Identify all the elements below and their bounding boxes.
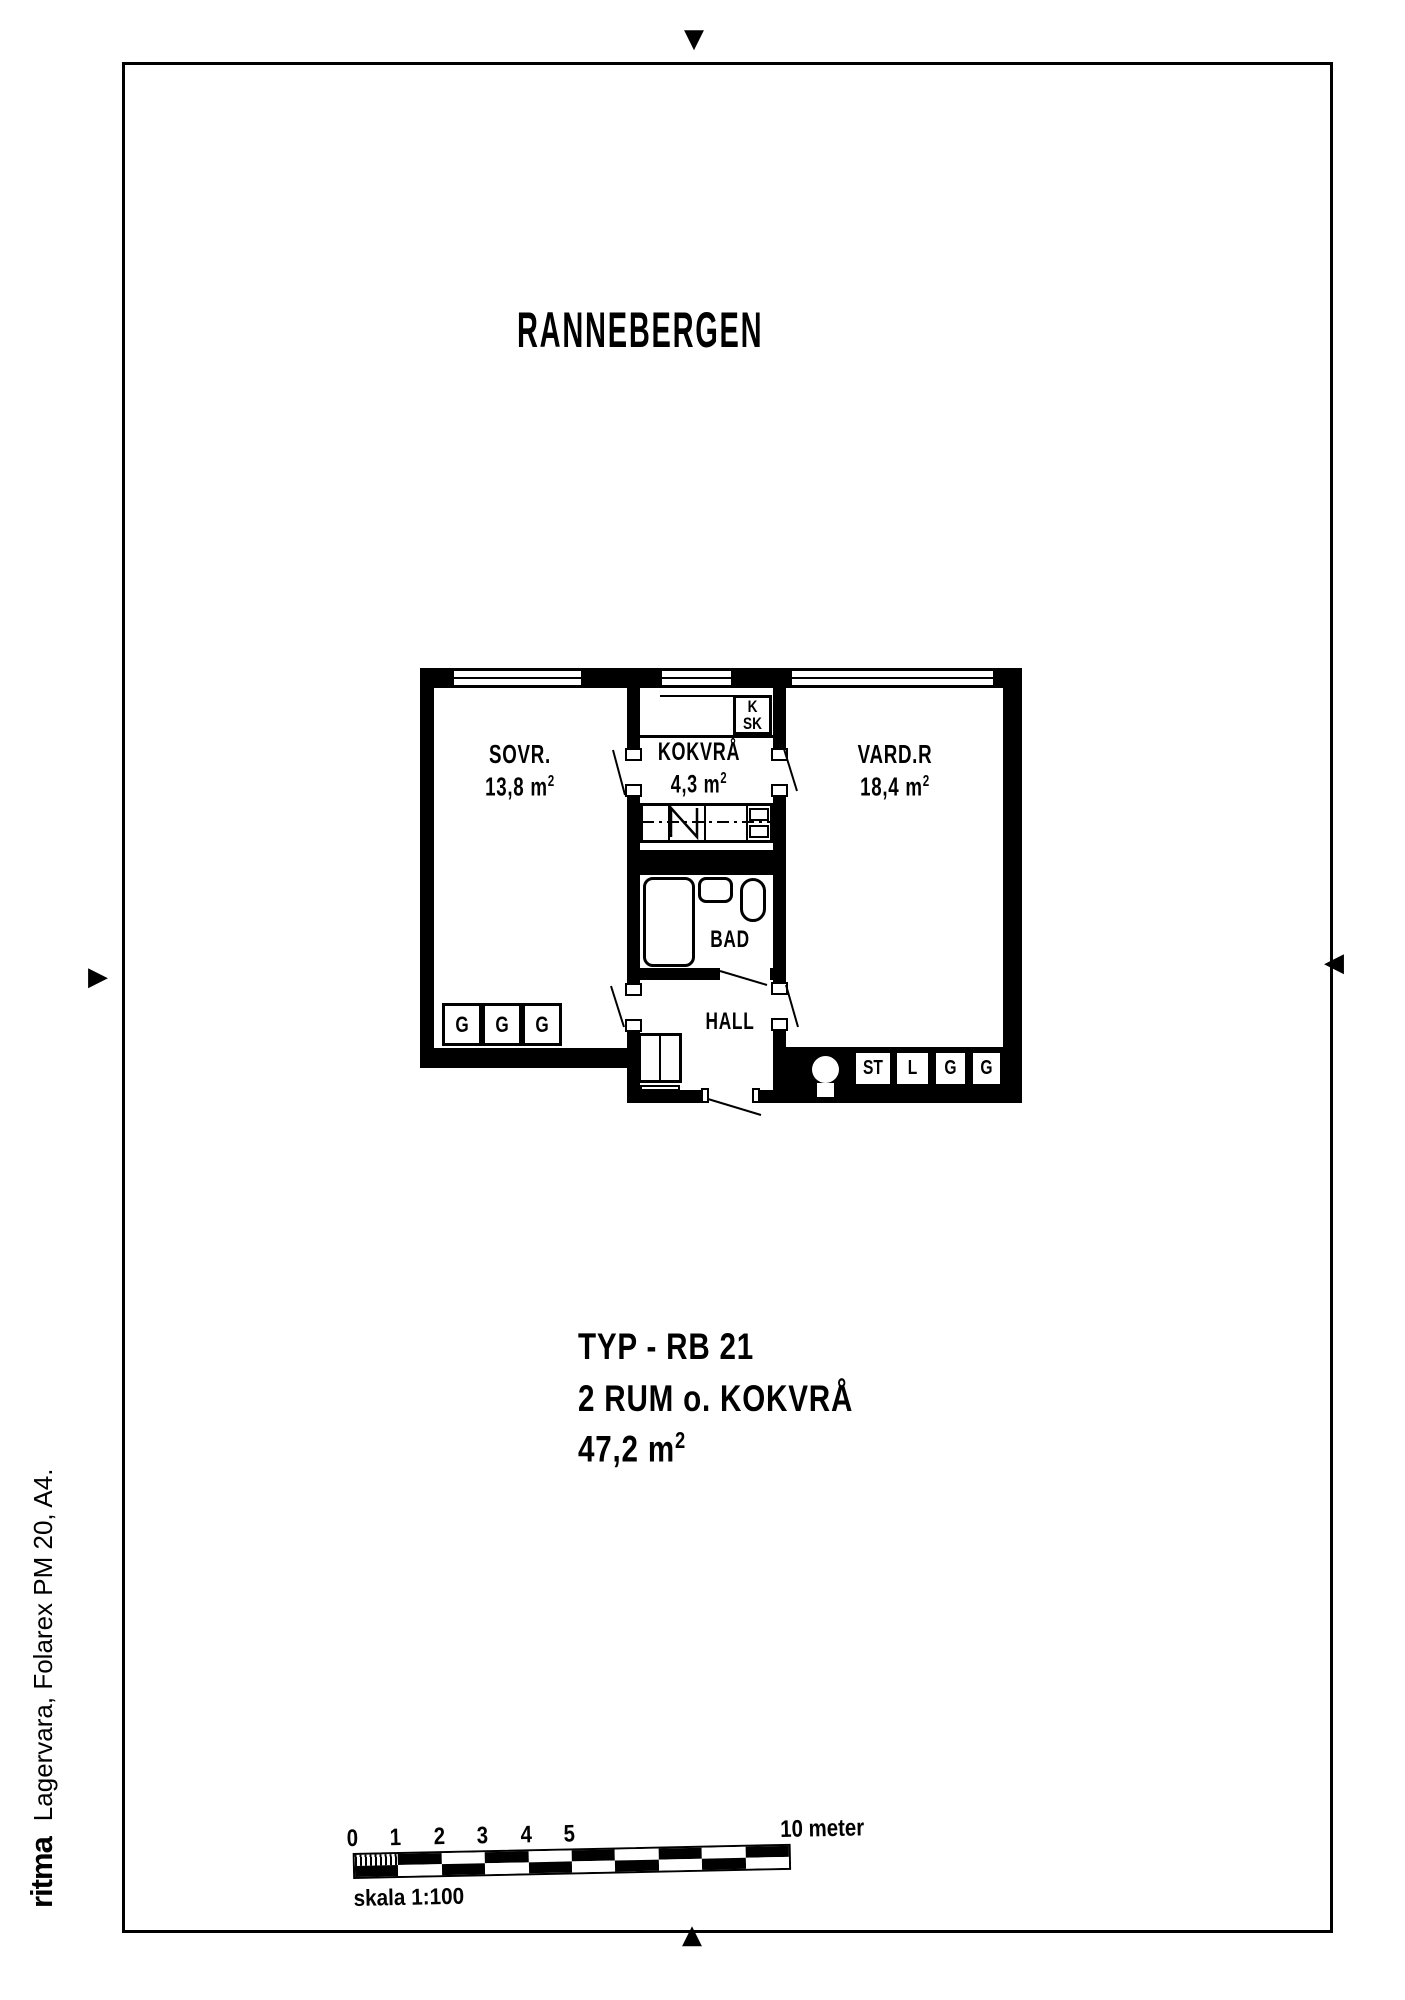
wall-right bbox=[1003, 668, 1022, 1103]
closet-label: ST bbox=[860, 1053, 887, 1084]
door-jamb bbox=[625, 1019, 642, 1032]
closet-box-l: L bbox=[894, 1050, 931, 1087]
room-label-sovr: SOVR. bbox=[462, 741, 577, 768]
room-area-sovr: 13,8 m2 bbox=[462, 773, 577, 801]
closet-box-g: G bbox=[933, 1050, 968, 1087]
closet-label-k: K bbox=[739, 698, 765, 715]
room-area-vardr: 18,4 m2 bbox=[837, 773, 952, 801]
cabinet-divider bbox=[659, 1036, 661, 1080]
closet-label: G bbox=[489, 1006, 516, 1043]
scale-tick: 5 bbox=[563, 1820, 575, 1848]
page-title: RANNEBERGEN bbox=[517, 301, 763, 359]
wall-bad-hall-a bbox=[640, 968, 720, 980]
cabinet-plinth bbox=[640, 1085, 680, 1091]
wall-hall-bottom-a bbox=[627, 1090, 702, 1103]
sink-basin-symbol bbox=[749, 808, 769, 821]
scale-tick: 2 bbox=[433, 1823, 445, 1851]
room-count-label: 2 RUM o. KOKVRÅ bbox=[578, 1378, 853, 1420]
room-label-kokvra: KOKVRÅ bbox=[649, 739, 748, 765]
bathtub-symbol bbox=[643, 877, 695, 967]
window-sill-kokvra bbox=[660, 690, 733, 697]
paper-stock-note: Lagervara, Folarex PM 20, A4. bbox=[28, 1469, 58, 1822]
kitchen-counter-symbol bbox=[640, 803, 773, 843]
entrance-door-opening bbox=[701, 1088, 760, 1103]
wall-left bbox=[420, 668, 434, 1068]
scale-tick: 0 bbox=[346, 1825, 358, 1853]
counter-divider bbox=[704, 806, 706, 840]
closet-label: L bbox=[900, 1053, 924, 1084]
type-designation: TYP - RB 21 bbox=[578, 1326, 754, 1368]
closet-label: G bbox=[449, 1006, 476, 1043]
door-jamb bbox=[701, 1088, 709, 1103]
door-jamb bbox=[771, 748, 788, 761]
water-column-base bbox=[817, 1083, 834, 1097]
door-opening-sovr-kokvra bbox=[625, 748, 642, 797]
door-jamb bbox=[625, 983, 642, 996]
door-jamb bbox=[771, 1018, 788, 1031]
door-jamb bbox=[771, 982, 788, 995]
closet-box-st: ST bbox=[853, 1050, 893, 1087]
closet-label: G bbox=[939, 1053, 962, 1084]
door-jamb bbox=[752, 1088, 760, 1103]
wall-kitchen-bath bbox=[627, 850, 786, 875]
floor-plan: K SK G G G bbox=[420, 665, 1022, 1135]
washbasin-symbol bbox=[698, 877, 733, 903]
water-column-symbol bbox=[812, 1056, 839, 1083]
door-opening-vardr-hall bbox=[771, 982, 788, 1031]
closet-box-g: G bbox=[522, 1003, 562, 1046]
door-jamb bbox=[771, 784, 788, 797]
door-opening-vardr-kokvra bbox=[771, 748, 788, 797]
scale-tick: 4 bbox=[520, 1821, 532, 1849]
closet-box-g: G bbox=[970, 1050, 1003, 1087]
hall-cabinet-symbol bbox=[638, 1033, 682, 1083]
closet-label: G bbox=[529, 1006, 556, 1043]
wall-bottom-left bbox=[420, 1048, 637, 1068]
printer-logo: ritma bbox=[24, 1837, 59, 1908]
room-label-bad: BAD bbox=[700, 927, 760, 952]
window-symbol-sovr bbox=[452, 668, 583, 688]
window-symbol-kokvra bbox=[660, 668, 733, 688]
window-symbol-vardr bbox=[790, 668, 995, 688]
counter-divider bbox=[668, 806, 670, 840]
scanned-floor-plan-page: ▼ ▲ ▶ ◀ RANNEBERGEN bbox=[0, 0, 1405, 2000]
registration-mark-right-icon: ◀ bbox=[1324, 950, 1344, 976]
registration-mark-left-icon: ▶ bbox=[88, 964, 108, 990]
scale-tick: 1 bbox=[390, 1824, 402, 1852]
scale-bar: 0 1 2 3 4 5 10 meter skala 1:100 bbox=[352, 1815, 874, 1912]
room-label-vardr: VARD.R bbox=[837, 741, 952, 768]
total-area-label: 47,2 m2 bbox=[578, 1427, 686, 1470]
wall-bad-hall-b bbox=[770, 968, 786, 980]
closet-box-g: G bbox=[442, 1003, 482, 1046]
counter-divider bbox=[746, 806, 748, 840]
closet-label-sk: SK bbox=[739, 715, 765, 732]
scale-end-label: 10 meter bbox=[780, 1814, 864, 1844]
toilet-symbol bbox=[740, 878, 766, 922]
door-jamb bbox=[625, 748, 642, 761]
registration-mark-top-icon: ▼ bbox=[684, 26, 704, 52]
closet-box-g: G bbox=[482, 1003, 522, 1046]
door-jamb bbox=[625, 784, 642, 797]
room-label-hall: HALL bbox=[698, 1009, 761, 1034]
door-opening-sovr-hall bbox=[625, 983, 642, 1032]
registration-mark-bottom-icon: ▲ bbox=[682, 1922, 702, 1948]
closet-box-ksk: K SK bbox=[733, 695, 772, 735]
room-area-kokvra: 4,3 m2 bbox=[649, 771, 748, 798]
scale-tick: 3 bbox=[477, 1822, 489, 1850]
closet-label: G bbox=[976, 1053, 997, 1084]
printer-margin-note: ritmaLagervara, Folarex PM 20, A4. bbox=[24, 1469, 60, 1908]
sink-basin-symbol bbox=[749, 825, 769, 838]
